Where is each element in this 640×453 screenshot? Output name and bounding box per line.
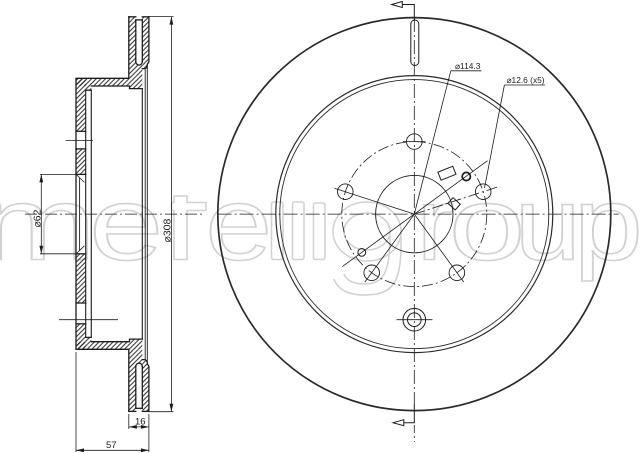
svg-text:⌀12.6 (x5): ⌀12.6 (x5) (507, 75, 545, 85)
svg-text:e: e (206, 166, 273, 282)
svg-text:⌀62: ⌀62 (31, 209, 43, 227)
svg-text:57: 57 (106, 440, 117, 451)
svg-text:⌀114.3: ⌀114.3 (455, 61, 481, 71)
svg-text:e: e (89, 166, 163, 282)
svg-text:16: 16 (135, 417, 146, 428)
svg-text:⌀308: ⌀308 (162, 218, 174, 242)
svg-text:p: p (574, 166, 640, 282)
svg-text:u: u (515, 166, 582, 282)
